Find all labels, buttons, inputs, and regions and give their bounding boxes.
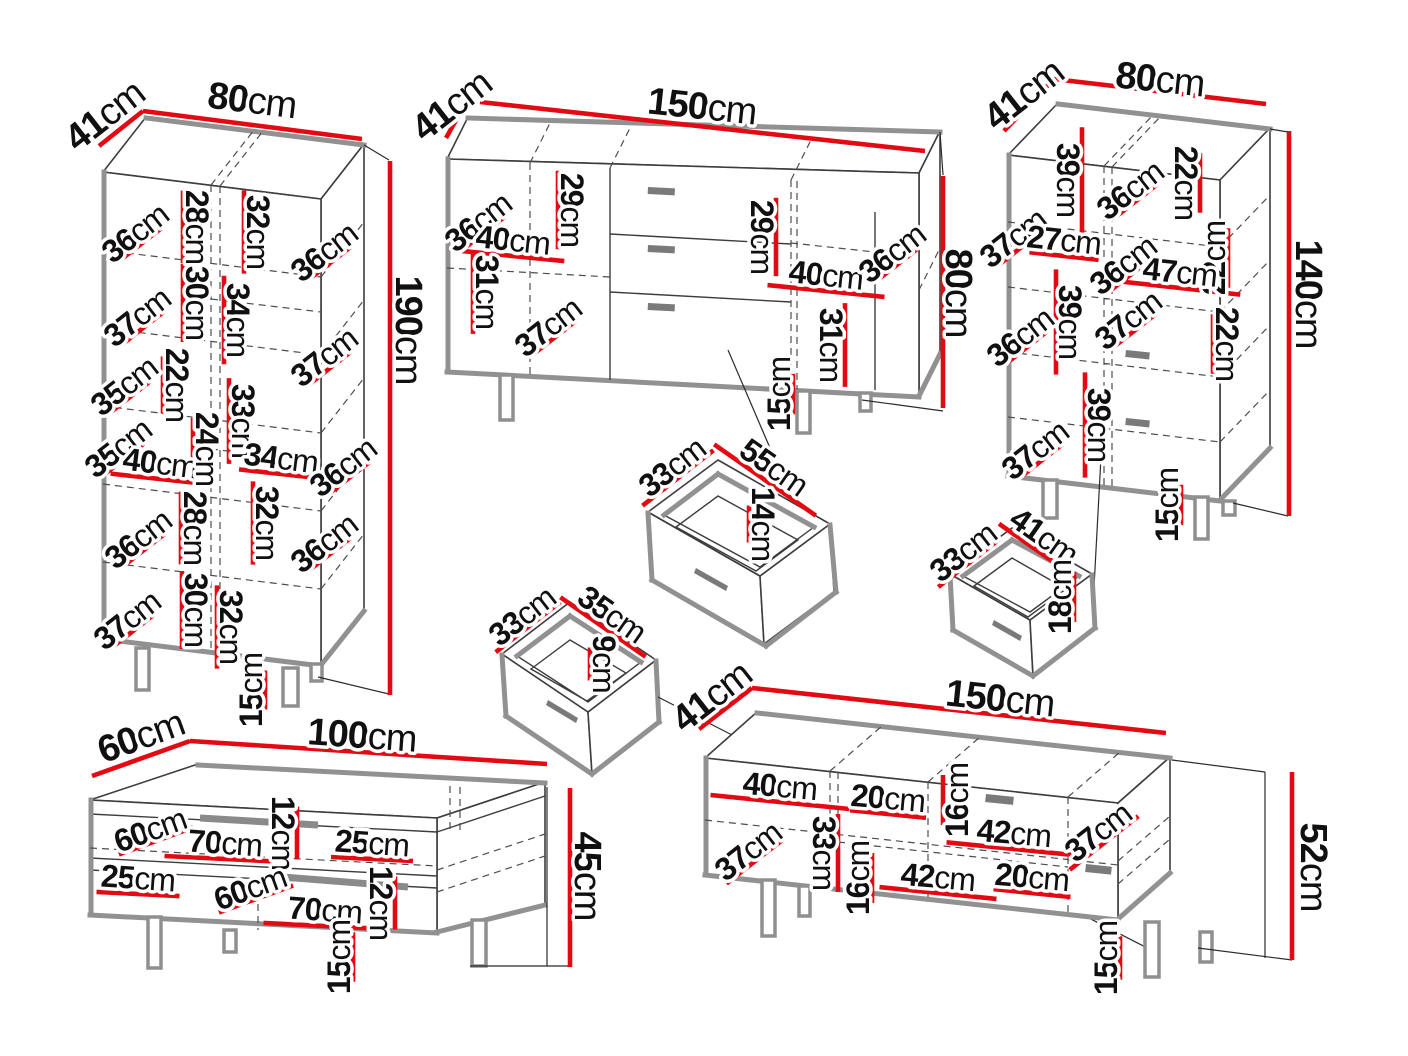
drawer-handle: [648, 245, 675, 253]
cabinet-leg: [283, 668, 298, 706]
cabinet-leg: [136, 648, 149, 690]
dimension-label: 25cm: [100, 857, 177, 898]
dimension-label: 32cm: [249, 486, 285, 560]
cabinet-foot: [311, 664, 322, 681]
dimension-label: 34cm: [220, 283, 256, 357]
tall-cabinet-drawing: 41cm80cm190cm36cm28cm32cm36cm37cm30cm34c…: [57, 72, 429, 727]
table-leg: [472, 920, 486, 966]
dimension-frame-lines: [1172, 760, 1292, 960]
dimension-label: 100cm: [306, 711, 418, 761]
dimension-label: 29cm: [744, 200, 780, 274]
cabinet-leg: [1195, 497, 1208, 539]
dimension-label: 12cm: [363, 866, 399, 940]
dimension-label: 25cm: [334, 822, 411, 863]
dimension-label: 15cm: [761, 357, 797, 431]
dimension-label: 190cm: [387, 275, 429, 384]
table-leg: [148, 917, 161, 968]
dimension-label: 15cm: [321, 920, 357, 994]
dimension-label: 80cm: [1114, 54, 1207, 105]
tv-stand-drawing: 41cm150cm52cm40cm20cm16cm42cm37cm37cm33c…: [664, 653, 1334, 995]
table-leg: [224, 930, 236, 952]
dimension-label: 39cm: [1050, 143, 1086, 217]
dimension-label: 12cm: [265, 796, 301, 870]
cabinet-leg: [1043, 480, 1057, 518]
dimension-label: 22cm: [1209, 307, 1245, 381]
dimension-label: 16cm: [939, 763, 975, 837]
dimension-label: 45cm: [566, 832, 608, 921]
sideboard-drawing: 41cm150cm80cm36cm29cm40cm31cm37cm29cm40c…: [404, 62, 979, 490]
dimension-label: 15cm: [233, 653, 269, 727]
dimension-label: 14cm: [745, 487, 781, 561]
tv-stand-leg: [799, 886, 810, 916]
dimension-label: 16cm: [840, 841, 876, 915]
dimension-label: 150cm: [944, 672, 1057, 725]
dimension-label: 15cm: [1149, 468, 1185, 542]
dimension-label: 30cm: [178, 573, 214, 647]
dimension-label: 20cm: [849, 777, 926, 819]
dimension-labels: 41cm150cm52cm40cm20cm16cm42cm37cm37cm33c…: [664, 653, 1334, 995]
dimension-label: 60cm: [92, 702, 190, 772]
sideboard-leg: [500, 375, 513, 420]
dimension-label: 30cm: [179, 266, 215, 340]
drawer-handle: [648, 303, 675, 311]
dimension-label: 28cm: [177, 491, 213, 565]
tv-stand-leg: [1145, 922, 1159, 977]
dimension-label: 31cm: [813, 308, 849, 382]
sideboard-foot: [860, 393, 871, 411]
sideboard-leg: [797, 391, 810, 433]
dimension-label: 40cm: [741, 765, 818, 807]
diagram-canvas: 41cm80cm190cm36cm28cm32cm36cm37cm30cm34c…: [0, 0, 1408, 1056]
dimension-label: 15cm: [1088, 921, 1124, 995]
dimension-label: 22cm: [1168, 146, 1204, 220]
drawer-box-medium-drawing: 33cm41cm18cm: [923, 500, 1095, 676]
dimension-label: 24cm: [189, 412, 225, 486]
dimension-label: 42cm: [899, 856, 976, 898]
dimension-label: 33cm: [806, 816, 842, 890]
dimension-label: 18cm: [1042, 560, 1078, 634]
dimension-label: 52cm: [1292, 823, 1334, 912]
tv-stand-foot: [1200, 932, 1212, 962]
dimension-label: 39cm: [1081, 388, 1117, 462]
dimension-label: 70cm: [187, 822, 264, 863]
dimension-label: 28cm: [179, 190, 215, 264]
drawer-handle: [648, 187, 675, 195]
furniture-dimension-diagram: 41cm80cm190cm36cm28cm32cm36cm37cm30cm34c…: [0, 0, 1408, 1056]
dimension-label: 31cm: [469, 255, 505, 329]
dimension-label: 20cm: [993, 856, 1070, 898]
dimension-label: 42cm: [975, 812, 1052, 854]
coffee-table-drawing: 60cm100cm45cm60cm70cm12cm25cm25cm60cm70c…: [90, 702, 608, 994]
tv-stand-leg: [762, 880, 775, 936]
dimension-label: 9cm: [586, 635, 622, 692]
dimension-label: 29cm: [554, 173, 590, 247]
drawer-box-large-drawing: 33cm55cm14cm: [632, 430, 836, 646]
dimension-label: 32cm: [240, 195, 276, 269]
dimension-label: 140cm: [1287, 239, 1329, 348]
dimension-label: 80cm: [937, 249, 979, 338]
dimension-label: 39cm: [1052, 285, 1088, 359]
